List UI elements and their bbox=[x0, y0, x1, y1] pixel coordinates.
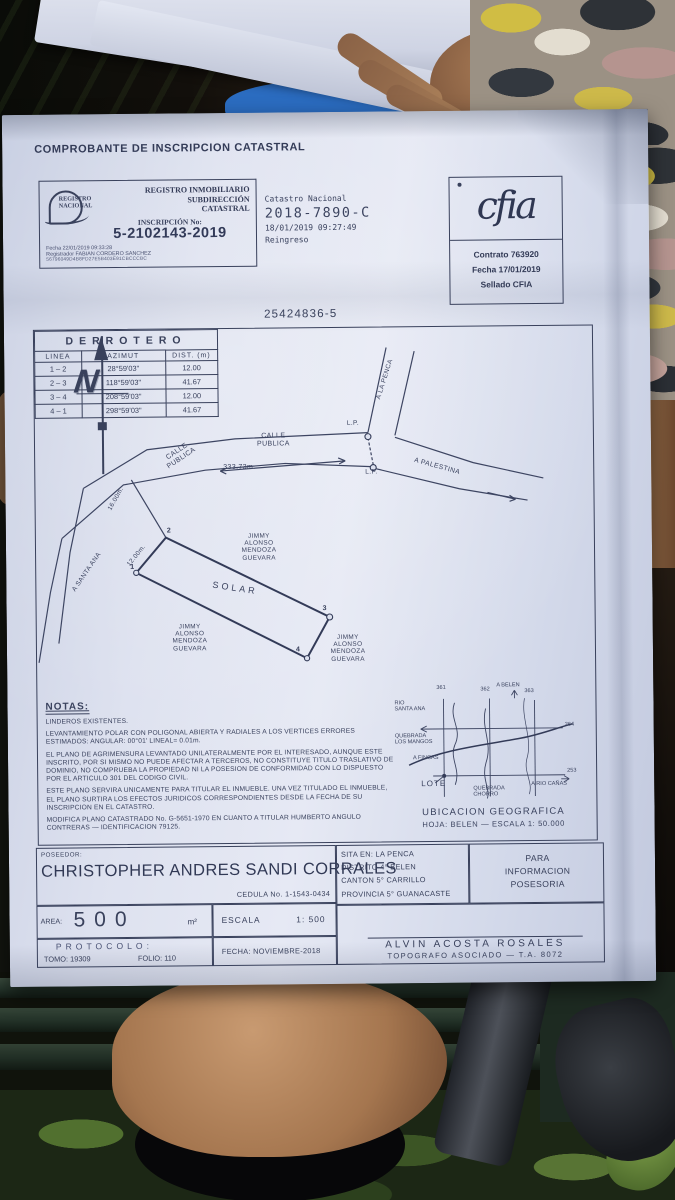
topografo-name: ALVIN ACOSTA ROSALES bbox=[368, 938, 583, 951]
registro-header: REGISTRO INMOBILIARIO SUBDIRECCIÓN CATAS… bbox=[100, 185, 250, 215]
map-subtitle: HOJA: BELEN — ESCALA 1: 50.000 bbox=[394, 818, 594, 829]
map-grid-361: 361 bbox=[436, 685, 445, 691]
north-arrow-icon: N bbox=[72, 336, 133, 477]
map-label-a-belen: A BELEN bbox=[496, 682, 519, 688]
para-info: PARA INFORMACION POSESORIA bbox=[470, 851, 605, 891]
map-grid-363: 363 bbox=[524, 688, 533, 694]
escala-label: ESCALA bbox=[222, 915, 261, 925]
escala-value: 1: 500 bbox=[296, 914, 325, 924]
catastro-title: Catastro Nacional bbox=[265, 194, 371, 204]
document-title: COMPROBANTE DE INSCRIPCION CATASTRAL bbox=[34, 141, 305, 156]
cfia-logo: cfia bbox=[450, 185, 562, 226]
corner-3: 3 bbox=[323, 605, 327, 612]
corner-1: 1 bbox=[130, 564, 134, 571]
ubicacion-cell: SITA EN: LA PENCA DISTRITO 4° BELEN CANT… bbox=[336, 844, 470, 905]
area-value: 500 bbox=[73, 908, 135, 933]
registro-hash: 56796049D4B8FD27E5B403E91CBCCCBC bbox=[46, 257, 147, 263]
map-grid-362: 362 bbox=[480, 686, 489, 692]
map-grid-264: 264 bbox=[565, 722, 574, 728]
photo-background-bottom bbox=[0, 972, 675, 1200]
catastro-status: Reingreso bbox=[265, 235, 371, 245]
footer-table: POSEEDOR: CHRISTOPHER ANDRES SANDI CORRA… bbox=[36, 842, 605, 967]
divider bbox=[450, 239, 562, 241]
area-unit: m² bbox=[188, 917, 197, 926]
north-tip bbox=[94, 336, 108, 360]
paper-crease bbox=[602, 109, 636, 981]
para-info-cell: PARA INFORMACION POSESORIA bbox=[469, 842, 605, 903]
protocolo-cell: PROTOCOLO: TOMO: 19309 FOLIO: 110 bbox=[37, 937, 213, 968]
neighbor-label: JIMMY ALONSO MENDOZA GUEVARA bbox=[224, 532, 294, 561]
cedula: CEDULA No. 1-1543-0434 bbox=[237, 889, 331, 899]
nota: EL PLANO DE AGRIMENSURA LEVANTADO UNILAT… bbox=[46, 748, 394, 784]
protocolo-label: PROTOCOLO: bbox=[56, 941, 153, 952]
poseedor-name: CHRISTOPHER ANDRES SANDI CORRALES bbox=[41, 860, 333, 882]
map-label-quebrada-mangos: QUEBRADA LOS MANGOS bbox=[395, 733, 433, 746]
cfia-box: cfia Contrato 763920 Fecha 17/01/2019 Se… bbox=[448, 176, 563, 305]
location-map: 361 362 363 264 253 RIO SANTA ANA A BELE… bbox=[392, 683, 593, 837]
provincia: PROVINCIA 5° GUANACASTE bbox=[341, 889, 450, 899]
canton: CANTON 5° CARRILLO bbox=[341, 875, 426, 885]
distrito: DISTRITO 4° BELEN bbox=[341, 862, 416, 872]
folio: FOLIO: 110 bbox=[138, 953, 176, 962]
logo-swoosh bbox=[45, 208, 89, 224]
lp-marker: L.P. bbox=[365, 469, 377, 477]
neighbor-label: JIMMY ALONSO MENDOZA GUEVARA bbox=[155, 623, 225, 652]
registro-box: REGISTRO NACIONAL REGISTRO INMOBILIARIO … bbox=[38, 179, 257, 269]
map-grid-253: 253 bbox=[567, 768, 576, 774]
nota: MODIFICA PLANO CATASTRADO No. G-5651-197… bbox=[47, 813, 395, 833]
nota: LEVANTAMIENTO POLAR CON POLIGONAL ABIERT… bbox=[46, 728, 394, 748]
topografo-cell: ALVIN ACOSTA ROSALES TOPOGRAFO ASOCIADO … bbox=[336, 902, 605, 965]
map-label-a-rio-canas: A RIO CAÑAS bbox=[531, 781, 567, 788]
registro-meta: Fecha 22/01/2019 09:33:28 Registrador FA… bbox=[46, 245, 151, 258]
fecha-cell: FECHA: NOVIEMBRE-2018 bbox=[213, 936, 337, 966]
notas-section: NOTAS: LINDEROS EXISTENTES. LEVANTAMIENT… bbox=[45, 693, 394, 833]
corner-2: 2 bbox=[167, 528, 171, 535]
road-distance: 333.73m. bbox=[223, 464, 255, 472]
area-label: AREA: bbox=[41, 917, 63, 926]
lp-marker: L.P. bbox=[347, 420, 359, 428]
fecha: FECHA: NOVIEMBRE-2018 bbox=[222, 946, 321, 956]
registro-nacional-logo-icon: REGISTRO NACIONAL bbox=[45, 188, 89, 230]
cadastral-document: COMPROBANTE DE INSCRIPCION CATASTRAL REG… bbox=[2, 109, 656, 987]
tomo: TOMO: 19309 bbox=[44, 954, 91, 963]
catastro-number: 2018-7890-C bbox=[265, 205, 371, 222]
photo-scene: COMPROBANTE DE INSCRIPCION CATASTRAL REG… bbox=[0, 0, 675, 1200]
north-bead bbox=[98, 422, 107, 430]
nota: LINDEROS EXISTENTES. bbox=[46, 715, 394, 727]
neighbor-label: JIMMY ALONSO MENDOZA GUEVARA bbox=[313, 633, 383, 662]
area-cell: AREA: 500 m² bbox=[36, 904, 212, 939]
map-label-lote: LOTE bbox=[421, 781, 446, 787]
nota: ESTE PLANO SERVIRA UNICAMENTE PARA TITUL… bbox=[46, 785, 394, 813]
north-cross bbox=[77, 393, 129, 395]
map-label-rio-santa-ana: RIO SANTA ANA bbox=[394, 700, 425, 713]
road-label-calle-publica: CALLE PUBLICA bbox=[257, 432, 290, 448]
notas-title: NOTAS: bbox=[45, 701, 89, 714]
catastro-datetime: 18/01/2019 09:27:49 bbox=[265, 223, 371, 233]
map-label-quebrada-chorro: QUEBRADA CHORRO bbox=[473, 785, 505, 798]
map-label-a-fincas: A FINCAS bbox=[413, 755, 439, 761]
plan-number: 25424836-5 bbox=[216, 307, 386, 321]
topografo-title: TOPOGRAFO ASOCIADO — T.A. 8072 bbox=[368, 950, 583, 961]
corner-4: 4 bbox=[296, 646, 300, 653]
survey-plan: DERROTERO LINEA AZIMUT DIST. (m) 1 – 228… bbox=[33, 324, 598, 845]
sita-en: SITA EN: LA PENCA bbox=[341, 849, 414, 859]
poseedor-cell: POSEEDOR: CHRISTOPHER ANDRES SANDI CORRA… bbox=[36, 845, 337, 906]
escala-cell: ESCALA 1: 500 bbox=[212, 903, 336, 937]
registro-logo-text: REGISTRO NACIONAL bbox=[59, 196, 93, 209]
map-title: UBICACION GEOGRAFICA bbox=[393, 805, 593, 818]
cfia-details: Contrato 763920 Fecha 17/01/2019 Sellado… bbox=[450, 247, 562, 293]
poseedor-label: POSEEDOR: bbox=[41, 851, 82, 858]
inscripcion-number: 5-2102143-2019 bbox=[90, 225, 250, 243]
catastro-stamp: Catastro Nacional 2018-7890-C 18/01/2019… bbox=[265, 194, 371, 245]
